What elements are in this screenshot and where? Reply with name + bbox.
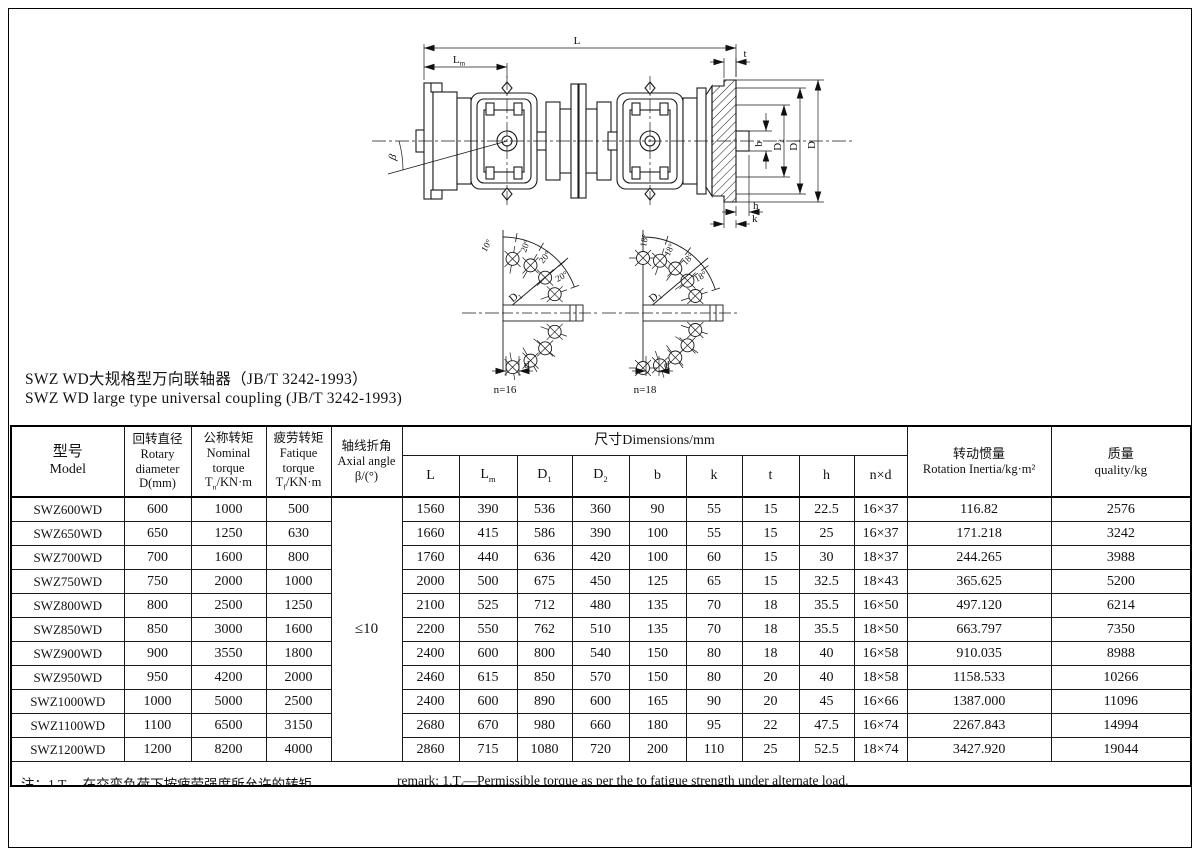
title-chinese: SWZ WD大规格型万向联轴器（JB/T 3242-1993） xyxy=(25,367,368,389)
table-cell: 415 xyxy=(459,522,517,546)
table-cell: 440 xyxy=(459,546,517,570)
col-header-dim-nxd: n×d xyxy=(854,456,907,498)
table-cell: 30 xyxy=(799,546,854,570)
col-header-fatigue-torque: 疲劳转矩 Fatique torque Tf/KN·m xyxy=(266,426,331,497)
table-cell: 675 xyxy=(517,570,572,594)
table-cell: 125 xyxy=(629,570,686,594)
table-cell: SWZ850WD xyxy=(11,618,124,642)
table-cell: 7350 xyxy=(1051,618,1191,642)
table-cell: 1660 xyxy=(402,522,459,546)
table-cell: 500 xyxy=(266,497,331,522)
col-header-dim-Lm: Lm xyxy=(459,456,517,498)
table-cell: 95 xyxy=(686,714,742,738)
table-cell: 3000 xyxy=(191,618,266,642)
table-cell: 35.5 xyxy=(799,618,854,642)
table-cell: 5200 xyxy=(1051,570,1191,594)
table-cell: 90 xyxy=(629,497,686,522)
col-header-dim-L: L xyxy=(402,456,459,498)
table-cell: 1100 xyxy=(124,714,191,738)
table-body: SWZ600WD6001000500≤101560390536360905515… xyxy=(11,497,1191,762)
table-cell: 762 xyxy=(517,618,572,642)
table-cell: 2680 xyxy=(402,714,459,738)
note-cell: 注：1.Tf—在交变负荷下按疲劳强度所允许的转矩。 remark: 1.Tf—P… xyxy=(11,762,1191,787)
table-cell: SWZ600WD xyxy=(11,497,124,522)
table-cell: 497.120 xyxy=(907,594,1051,618)
table-cell: 2000 xyxy=(402,570,459,594)
table-cell: 550 xyxy=(459,618,517,642)
hole-count-n18: n=18 xyxy=(634,384,657,396)
table-row: SWZ1000WD1000500025002400600890600165902… xyxy=(11,690,1191,714)
table-cell: 420 xyxy=(572,546,629,570)
table-cell: 600 xyxy=(124,497,191,522)
table-cell: 116.82 xyxy=(907,497,1051,522)
table-cell: 8988 xyxy=(1051,642,1191,666)
table-cell: 16×74 xyxy=(854,714,907,738)
table-cell: 25 xyxy=(742,738,799,762)
table-cell: 32.5 xyxy=(799,570,854,594)
table-cell: 525 xyxy=(459,594,517,618)
table-cell: 670 xyxy=(459,714,517,738)
table-cell: 6214 xyxy=(1051,594,1191,618)
table-cell: SWZ800WD xyxy=(11,594,124,618)
table-cell: 165 xyxy=(629,690,686,714)
table-cell: 150 xyxy=(629,666,686,690)
table-cell: 90 xyxy=(686,690,742,714)
table-cell: 100 xyxy=(629,522,686,546)
hole-count-n16: n=16 xyxy=(494,384,517,396)
svg-text:20°: 20° xyxy=(518,238,532,254)
table-cell: SWZ900WD xyxy=(11,642,124,666)
technical-drawing: L Lm t β b D2 D1 D h k xyxy=(0,0,1200,420)
table-cell: 80 xyxy=(686,642,742,666)
table-cell: 150 xyxy=(629,642,686,666)
dim-beta: β xyxy=(386,153,399,163)
table-cell: SWZ950WD xyxy=(11,666,124,690)
table-cell: 18×74 xyxy=(854,738,907,762)
table-cell: 16×58 xyxy=(854,642,907,666)
spec-table: 型号 Model 回转直径 Rotary diameter D(mm) 公称转矩… xyxy=(10,425,1192,787)
table-cell: 390 xyxy=(572,522,629,546)
table-cell: 980 xyxy=(517,714,572,738)
dim-t: t xyxy=(743,48,746,60)
table-cell: 55 xyxy=(686,497,742,522)
table-row: SWZ1200WD1200820040002860715108072020011… xyxy=(11,738,1191,762)
table-cell: 1080 xyxy=(517,738,572,762)
table-cell: 890 xyxy=(517,690,572,714)
table-cell: 60 xyxy=(686,546,742,570)
svg-text:20°: 20° xyxy=(537,249,553,265)
table-row: SWZ600WD6001000500≤101560390536360905515… xyxy=(11,497,1191,522)
table-cell: 950 xyxy=(124,666,191,690)
col-header-dim-h: h xyxy=(799,456,854,498)
table-cell: 47.5 xyxy=(799,714,854,738)
table-cell: 100 xyxy=(629,546,686,570)
table-cell: 630 xyxy=(266,522,331,546)
table-cell: 1600 xyxy=(266,618,331,642)
table-cell: 800 xyxy=(517,642,572,666)
table-row: SWZ750WD75020001000200050067545012565153… xyxy=(11,570,1191,594)
table-cell: 16×66 xyxy=(854,690,907,714)
table-cell: 1250 xyxy=(266,594,331,618)
table-cell: SWZ650WD xyxy=(11,522,124,546)
dim-D2: D2 xyxy=(772,139,786,151)
table-cell: 70 xyxy=(686,618,742,642)
table-cell: 52.5 xyxy=(799,738,854,762)
table-cell: 55 xyxy=(686,522,742,546)
table-cell: 750 xyxy=(124,570,191,594)
table-cell: 110 xyxy=(686,738,742,762)
table-cell: 2000 xyxy=(191,570,266,594)
table-cell: 600 xyxy=(459,690,517,714)
table-cell: 2400 xyxy=(402,690,459,714)
table-cell: 80 xyxy=(686,666,742,690)
table-cell: 11096 xyxy=(1051,690,1191,714)
table-cell: 650 xyxy=(124,522,191,546)
table-cell: 14994 xyxy=(1051,714,1191,738)
col-header-dim-D1: D1 xyxy=(517,456,572,498)
table-cell: 712 xyxy=(517,594,572,618)
dim-D: D xyxy=(806,141,818,149)
table-cell: 200 xyxy=(629,738,686,762)
table-cell: 540 xyxy=(572,642,629,666)
table-cell: 40 xyxy=(799,642,854,666)
table-cell: 2267.843 xyxy=(907,714,1051,738)
table-row: SWZ1100WD1100650031502680670980660180952… xyxy=(11,714,1191,738)
bolt-pattern-view-n18 xyxy=(629,230,723,378)
table-cell: 1000 xyxy=(266,570,331,594)
table-cell: 600 xyxy=(459,642,517,666)
axial-angle-value: ≤10 xyxy=(331,497,402,762)
table-cell: 15 xyxy=(742,497,799,522)
bolt-pattern-view-n16 xyxy=(492,230,583,380)
table-cell: 135 xyxy=(629,618,686,642)
table-cell: 18×58 xyxy=(854,666,907,690)
col-header-rotary-diameter: 回转直径 Rotary diameter D(mm) xyxy=(124,426,191,497)
table-cell: 536 xyxy=(517,497,572,522)
table-cell: 2500 xyxy=(191,594,266,618)
col-header-dim-t: t xyxy=(742,456,799,498)
table-cell: 365.625 xyxy=(907,570,1051,594)
col-header-quality: 质量 quality/kg xyxy=(1051,426,1191,497)
col-header-nominal-torque: 公称转矩 Nominal torque Tn/KN·m xyxy=(191,426,266,497)
table-cell: 35.5 xyxy=(799,594,854,618)
svg-text:20°: 20° xyxy=(554,269,570,284)
table-cell: 171.218 xyxy=(907,522,1051,546)
table-cell: 1800 xyxy=(266,642,331,666)
table-cell: 3242 xyxy=(1051,522,1191,546)
table-cell: 900 xyxy=(124,642,191,666)
table-cell: 390 xyxy=(459,497,517,522)
table-cell: 25 xyxy=(799,522,854,546)
table-cell: 3550 xyxy=(191,642,266,666)
table-cell: 660 xyxy=(572,714,629,738)
table-cell: SWZ750WD xyxy=(11,570,124,594)
dim-h: h xyxy=(753,200,759,212)
datasheet-page: L Lm t β b D2 D1 D h k xyxy=(0,0,1200,856)
table-cell: 586 xyxy=(517,522,572,546)
table-cell: 1200 xyxy=(124,738,191,762)
table-cell: 180 xyxy=(629,714,686,738)
table-cell: SWZ700WD xyxy=(11,546,124,570)
table-cell: 600 xyxy=(572,690,629,714)
col-header-axial-angle: 轴线折角 Axial angle β/(°) xyxy=(331,426,402,497)
svg-text:D1: D1 xyxy=(647,288,665,306)
table-cell: 18 xyxy=(742,618,799,642)
table-row: SWZ850WD85030001600220055076251013570183… xyxy=(11,618,1191,642)
table-cell: 2576 xyxy=(1051,497,1191,522)
table-cell: 18×43 xyxy=(854,570,907,594)
table-cell: 2100 xyxy=(402,594,459,618)
table-cell: 1760 xyxy=(402,546,459,570)
table-cell: SWZ1000WD xyxy=(11,690,124,714)
table-cell: 70 xyxy=(686,594,742,618)
table-cell: 1158.533 xyxy=(907,666,1051,690)
table-cell: 10266 xyxy=(1051,666,1191,690)
table-cell: 15 xyxy=(742,570,799,594)
table-cell: 800 xyxy=(124,594,191,618)
table-cell: 22 xyxy=(742,714,799,738)
table-cell: 1387.000 xyxy=(907,690,1051,714)
svg-text:d: d xyxy=(524,359,530,371)
col-header-model: 型号 Model xyxy=(11,426,124,497)
table-cell: 20 xyxy=(742,690,799,714)
table-cell: 3427.920 xyxy=(907,738,1051,762)
table-cell: 2460 xyxy=(402,666,459,690)
table-cell: 15 xyxy=(742,546,799,570)
note-english: remark: 1.Tf—Permissible torque as per t… xyxy=(397,773,849,786)
col-header-dim-k: k xyxy=(686,456,742,498)
svg-text:D1: D1 xyxy=(507,288,525,306)
table-cell: 65 xyxy=(686,570,742,594)
table-cell: 700 xyxy=(124,546,191,570)
table-cell: 4200 xyxy=(191,666,266,690)
table-cell: 18 xyxy=(742,594,799,618)
table-cell: 18 xyxy=(742,642,799,666)
table-cell: 570 xyxy=(572,666,629,690)
table-cell: 480 xyxy=(572,594,629,618)
dim-k: k xyxy=(752,213,758,225)
svg-text:10°: 10° xyxy=(479,237,494,253)
table-cell: 16×37 xyxy=(854,522,907,546)
table-cell: 663.797 xyxy=(907,618,1051,642)
table-cell: 4000 xyxy=(266,738,331,762)
title-english: SWZ WD large type universal coupling (JB… xyxy=(25,390,402,408)
table-cell: 22.5 xyxy=(799,497,854,522)
note-chinese: 注：1.Tf—在交变负荷下按疲劳强度所允许的转矩。 xyxy=(21,773,326,786)
table-cell: 450 xyxy=(572,570,629,594)
table-cell: 720 xyxy=(572,738,629,762)
note-row: 注：1.Tf—在交变负荷下按疲劳强度所允许的转矩。 remark: 1.Tf—P… xyxy=(11,762,1191,787)
table-cell: 16×37 xyxy=(854,497,907,522)
table-cell: 45 xyxy=(799,690,854,714)
table-row: SWZ950WD95042002000246061585057015080204… xyxy=(11,666,1191,690)
col-header-rotation-inertia: 转动惯量 Rotation Inertia/kg·m² xyxy=(907,426,1051,497)
table-row: SWZ650WD65012506301660415586390100551525… xyxy=(11,522,1191,546)
table-cell: 3150 xyxy=(266,714,331,738)
dim-b: b xyxy=(753,141,765,147)
table-cell: 16×50 xyxy=(854,594,907,618)
table-cell: 135 xyxy=(629,594,686,618)
table-cell: 1000 xyxy=(124,690,191,714)
table-cell: 19044 xyxy=(1051,738,1191,762)
table-cell: SWZ1200WD xyxy=(11,738,124,762)
svg-text:18°: 18° xyxy=(680,251,696,267)
table-cell: 715 xyxy=(459,738,517,762)
table-cell: 636 xyxy=(517,546,572,570)
table-cell: 6500 xyxy=(191,714,266,738)
table-cell: 1000 xyxy=(191,497,266,522)
table-cell: 910.035 xyxy=(907,642,1051,666)
table-cell: 850 xyxy=(124,618,191,642)
table-cell: 18×50 xyxy=(854,618,907,642)
table-cell: 2500 xyxy=(266,690,331,714)
table-cell: 18×37 xyxy=(854,546,907,570)
table-cell: 500 xyxy=(459,570,517,594)
dim-D1: D1 xyxy=(788,139,802,151)
table-cell: 15 xyxy=(742,522,799,546)
table-cell: 615 xyxy=(459,666,517,690)
table-cell: 2400 xyxy=(402,642,459,666)
dim-L: L xyxy=(574,35,581,47)
table-cell: 800 xyxy=(266,546,331,570)
table-cell: 510 xyxy=(572,618,629,642)
table-cell: SWZ1100WD xyxy=(11,714,124,738)
col-header-dim-b: b xyxy=(629,456,686,498)
col-header-dimensions-band: 尺寸Dimensions/mm xyxy=(402,426,907,456)
dim-Lm: Lm xyxy=(453,54,466,68)
table-cell: 2000 xyxy=(266,666,331,690)
table-cell: 1250 xyxy=(191,522,266,546)
svg-text:d: d xyxy=(664,359,670,371)
table-cell: 2860 xyxy=(402,738,459,762)
table-cell: 850 xyxy=(517,666,572,690)
table-row: SWZ900WD90035501800240060080054015080184… xyxy=(11,642,1191,666)
table-row: SWZ700WD70016008001760440636420100601530… xyxy=(11,546,1191,570)
table-cell: 8200 xyxy=(191,738,266,762)
table-cell: 2200 xyxy=(402,618,459,642)
table-cell: 1600 xyxy=(191,546,266,570)
table-cell: 20 xyxy=(742,666,799,690)
table-cell: 1560 xyxy=(402,497,459,522)
table-cell: 360 xyxy=(572,497,629,522)
table-cell: 40 xyxy=(799,666,854,690)
table-row: SWZ800WD80025001250210052571248013570183… xyxy=(11,594,1191,618)
col-header-dim-D2: D2 xyxy=(572,456,629,498)
table-cell: 5000 xyxy=(191,690,266,714)
table-cell: 244.265 xyxy=(907,546,1051,570)
table-cell: 3988 xyxy=(1051,546,1191,570)
svg-text:18°: 18° xyxy=(638,233,650,248)
